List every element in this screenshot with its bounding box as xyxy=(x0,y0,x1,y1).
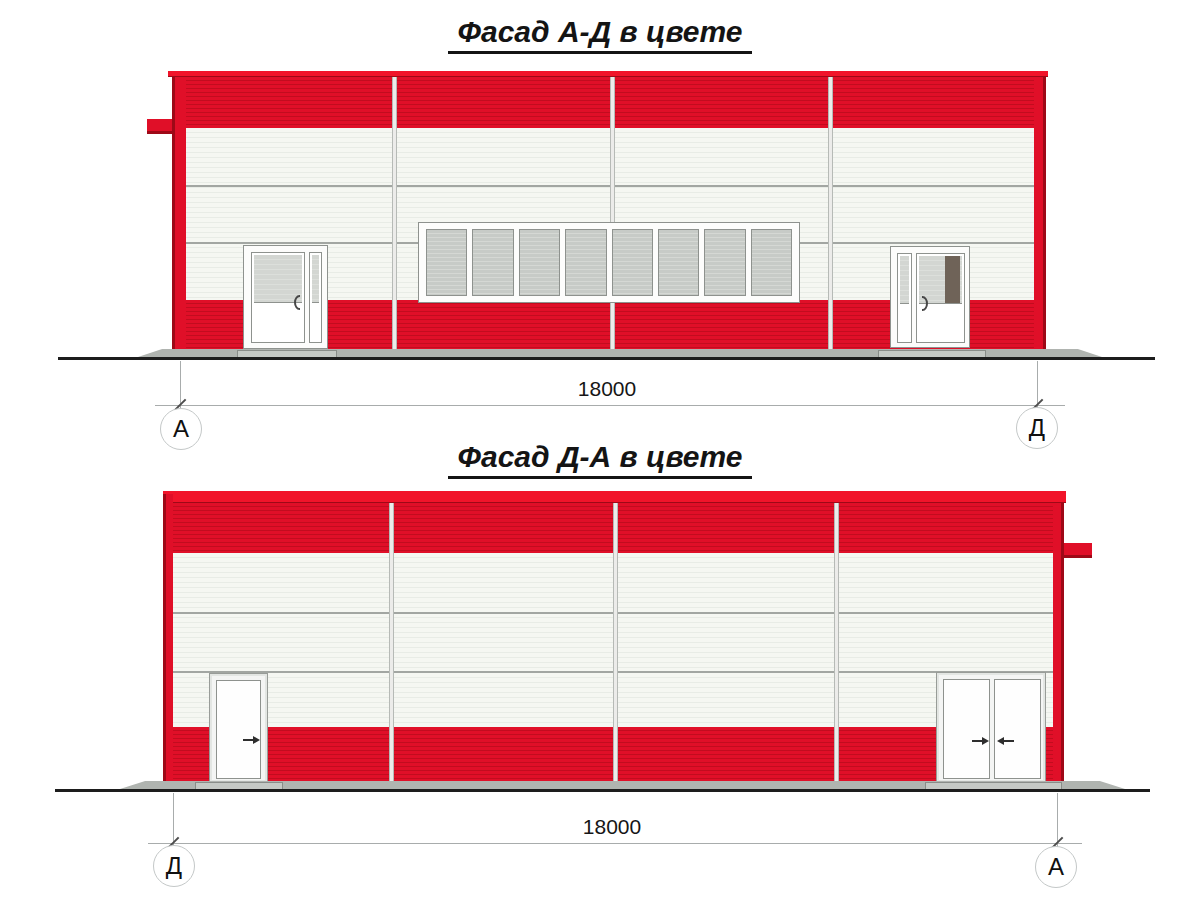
canopy-stub-icon xyxy=(147,119,173,134)
window-pane xyxy=(519,229,560,296)
window-pane xyxy=(658,229,699,296)
window-pane xyxy=(426,229,467,296)
corner-pilaster-left xyxy=(172,77,186,353)
axis-bubble-a: А xyxy=(1035,846,1077,888)
corner-pilaster-right xyxy=(1053,503,1064,783)
facade-wall xyxy=(173,503,1053,783)
open-inner-door xyxy=(945,256,960,303)
door-side-panel xyxy=(897,253,912,343)
door-glazing xyxy=(900,256,909,304)
facade-d-a-title: Фасад Д-А в цвете xyxy=(448,441,753,479)
ground-line xyxy=(58,357,1155,360)
ground-line xyxy=(55,789,1150,792)
panel-joint-vertical xyxy=(389,503,394,783)
roof-coping xyxy=(163,491,1066,503)
window-pane xyxy=(704,229,745,296)
facade-view-a-d: Фасад А-Д в цвете xyxy=(0,0,1200,445)
door-leaf xyxy=(916,253,965,343)
door-leaf xyxy=(216,680,261,779)
service-door-double-right xyxy=(936,672,1046,783)
corner-pilaster-left xyxy=(163,494,173,783)
axis-label: А xyxy=(1048,853,1064,881)
dimension-line xyxy=(155,405,1065,406)
window-pane xyxy=(612,229,653,296)
door-swing-arrow-icon xyxy=(243,739,254,741)
door-leaf xyxy=(943,679,990,779)
corner-pilaster-right xyxy=(1034,77,1046,353)
door-swing-arrow-icon xyxy=(1003,740,1014,742)
window-pane xyxy=(565,229,606,296)
facade-d-a-title-row: Фасад Д-А в цвете xyxy=(0,441,1200,479)
door-glazing xyxy=(312,255,319,303)
dimension-value: 18000 xyxy=(578,377,636,401)
service-door-left xyxy=(209,673,268,783)
axis-label: Д xyxy=(1029,414,1045,442)
drawing-canvas: Фасад А-Д в цвете xyxy=(0,0,1200,900)
dimension-line xyxy=(148,843,1082,844)
dimension-value: 18000 xyxy=(583,815,641,839)
facade-view-d-a: Фасад Д-А в цвете xyxy=(0,445,1200,900)
panel-joint-vertical xyxy=(828,77,833,353)
entrance-door-right xyxy=(890,246,970,348)
facade-a-d-title-row: Фасад А-Д в цвете xyxy=(0,16,1200,54)
door-leaf xyxy=(251,252,305,343)
entrance-door-left xyxy=(243,245,328,349)
door-handle-icon xyxy=(294,295,305,310)
door-leaf xyxy=(994,679,1041,779)
axis-bubble-d: Д xyxy=(153,845,195,887)
panel-joint-vertical xyxy=(610,77,615,353)
panel-joint-vertical xyxy=(834,503,839,783)
canopy-stub-icon xyxy=(1064,543,1092,558)
panel-joint-vertical xyxy=(613,503,618,783)
window-pane xyxy=(472,229,513,296)
panel-joint-vertical xyxy=(392,77,397,353)
door-swing-arrow-icon xyxy=(972,740,983,742)
window-pane xyxy=(751,229,792,296)
ribbon-window xyxy=(418,222,800,303)
facade-a-d-title: Фасад А-Д в цвете xyxy=(448,16,753,54)
door-glazing xyxy=(254,255,302,303)
axis-label: А xyxy=(173,415,189,443)
door-side-panel xyxy=(309,252,322,343)
axis-label: Д xyxy=(166,852,182,880)
